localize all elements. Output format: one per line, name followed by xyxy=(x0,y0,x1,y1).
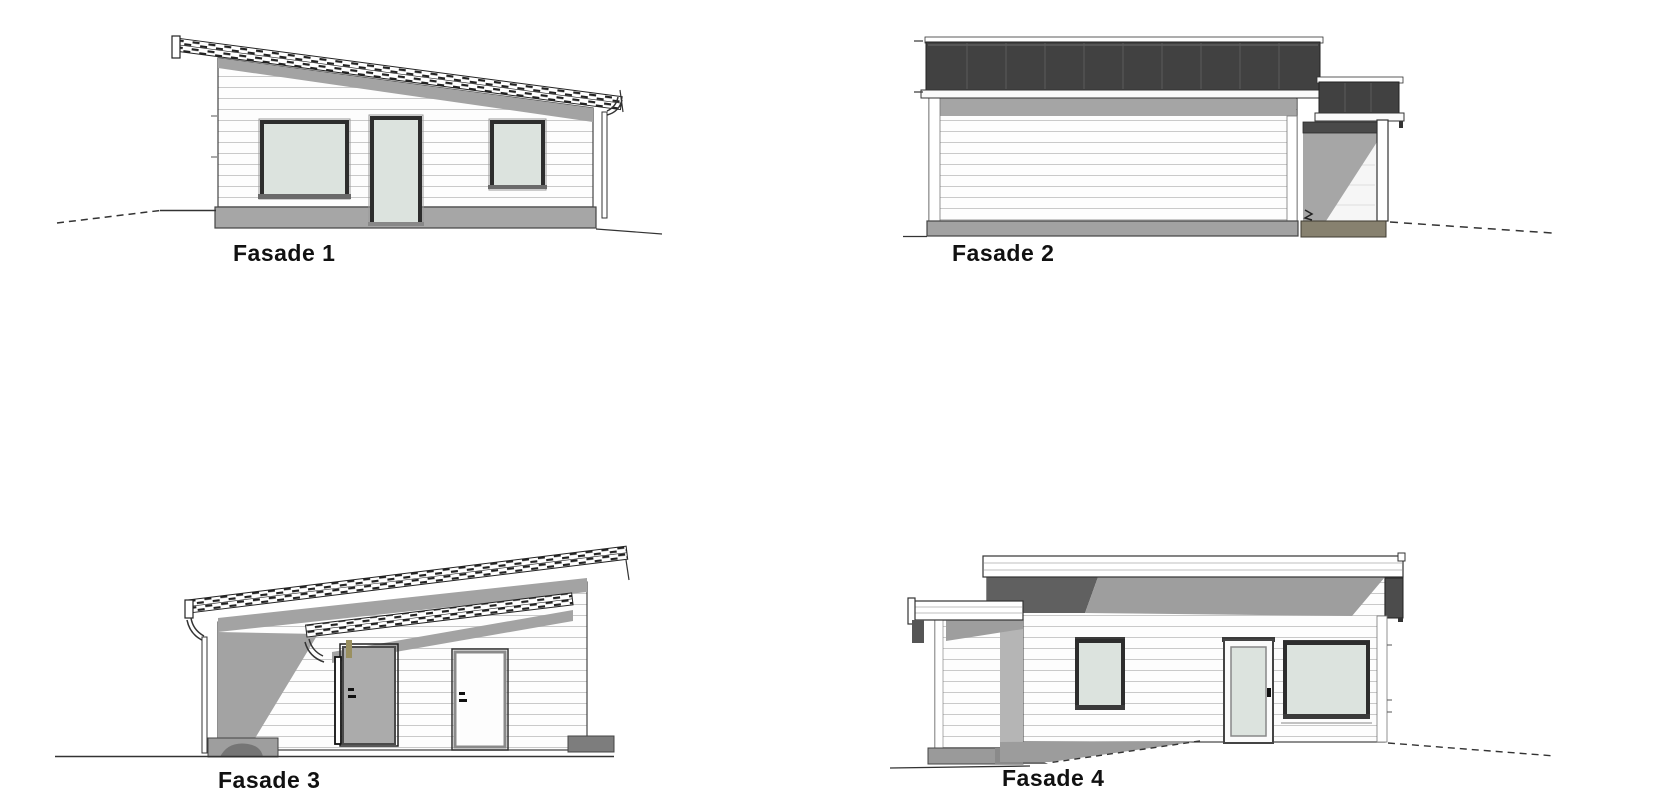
roof-fascia xyxy=(983,553,1405,577)
fasade-1-label: Fasade 1 xyxy=(233,240,335,266)
annex-corner-dark xyxy=(912,620,924,643)
roof-corner-right xyxy=(1385,578,1403,622)
carport-opening xyxy=(1303,120,1388,221)
annex-roof-band xyxy=(1315,77,1404,128)
window-small xyxy=(1075,637,1125,710)
roof-band xyxy=(914,37,1326,98)
entry-door xyxy=(368,115,424,226)
window-large xyxy=(258,119,351,199)
fascia-end-cap xyxy=(172,36,180,58)
fascia-end-cap xyxy=(185,600,193,618)
fasade-1-elevation: Fasade 1 xyxy=(57,36,662,266)
elevations-figure: Fasade 1 xyxy=(0,0,1670,800)
corner-board-right xyxy=(1287,116,1297,221)
foundation-right xyxy=(568,736,614,752)
fasade-3-label: Fasade 3 xyxy=(218,767,320,793)
window-large xyxy=(1281,640,1372,723)
annex-fascia xyxy=(908,598,1023,624)
downspout-left xyxy=(187,618,207,753)
ground-line xyxy=(1390,222,1552,233)
annex-corner-shadow xyxy=(1000,620,1023,748)
door-white xyxy=(452,649,508,750)
fasade-4-label: Fasade 4 xyxy=(1002,765,1104,791)
corner-board-left xyxy=(929,98,940,221)
carport-post xyxy=(1377,120,1388,221)
entry-door xyxy=(1222,637,1275,743)
corner-board-right xyxy=(1377,616,1387,742)
window-small xyxy=(488,119,547,190)
fasade-2-elevation: Fasade 2 xyxy=(903,37,1552,266)
foundation xyxy=(927,221,1298,236)
ground-line xyxy=(1388,743,1555,756)
terrain xyxy=(1000,741,1555,763)
fasade-2-label: Fasade 2 xyxy=(952,240,1054,266)
fasade-4-elevation: Fasade 4 xyxy=(890,553,1555,791)
drawing-sheet: Fasade 1 xyxy=(0,0,1670,800)
carport-header xyxy=(1303,122,1377,133)
door-gray xyxy=(340,644,398,746)
foundation-left xyxy=(208,738,278,757)
eave-shadow xyxy=(1085,577,1385,616)
fasade-3-elevation: Fasade 3 xyxy=(55,546,629,793)
carport-foundation xyxy=(1301,221,1386,237)
wall xyxy=(929,98,1297,221)
eave-shadow xyxy=(930,98,1296,116)
